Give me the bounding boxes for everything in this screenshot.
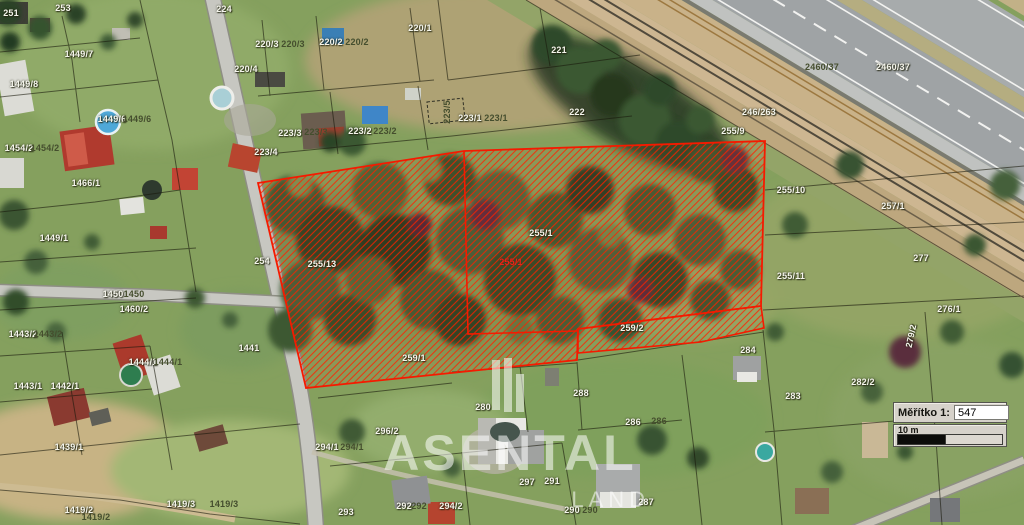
- scale-widget: Měřítko 1: 10 m: [893, 402, 1007, 447]
- scale-label: Měřítko 1:: [898, 407, 950, 419]
- scale-row: Měřítko 1:: [893, 402, 1007, 423]
- scale-bar-panel: 10 m: [893, 424, 1007, 447]
- satellite-canvas: [0, 0, 1024, 525]
- map-viewport[interactable]: 2512532241449/71449/81449/61449/61454/21…: [0, 0, 1024, 525]
- scale-input[interactable]: [954, 405, 1009, 420]
- scale-bar: [897, 434, 1003, 445]
- scale-bar-filled: [898, 435, 945, 444]
- scale-bar-empty: [945, 435, 1002, 444]
